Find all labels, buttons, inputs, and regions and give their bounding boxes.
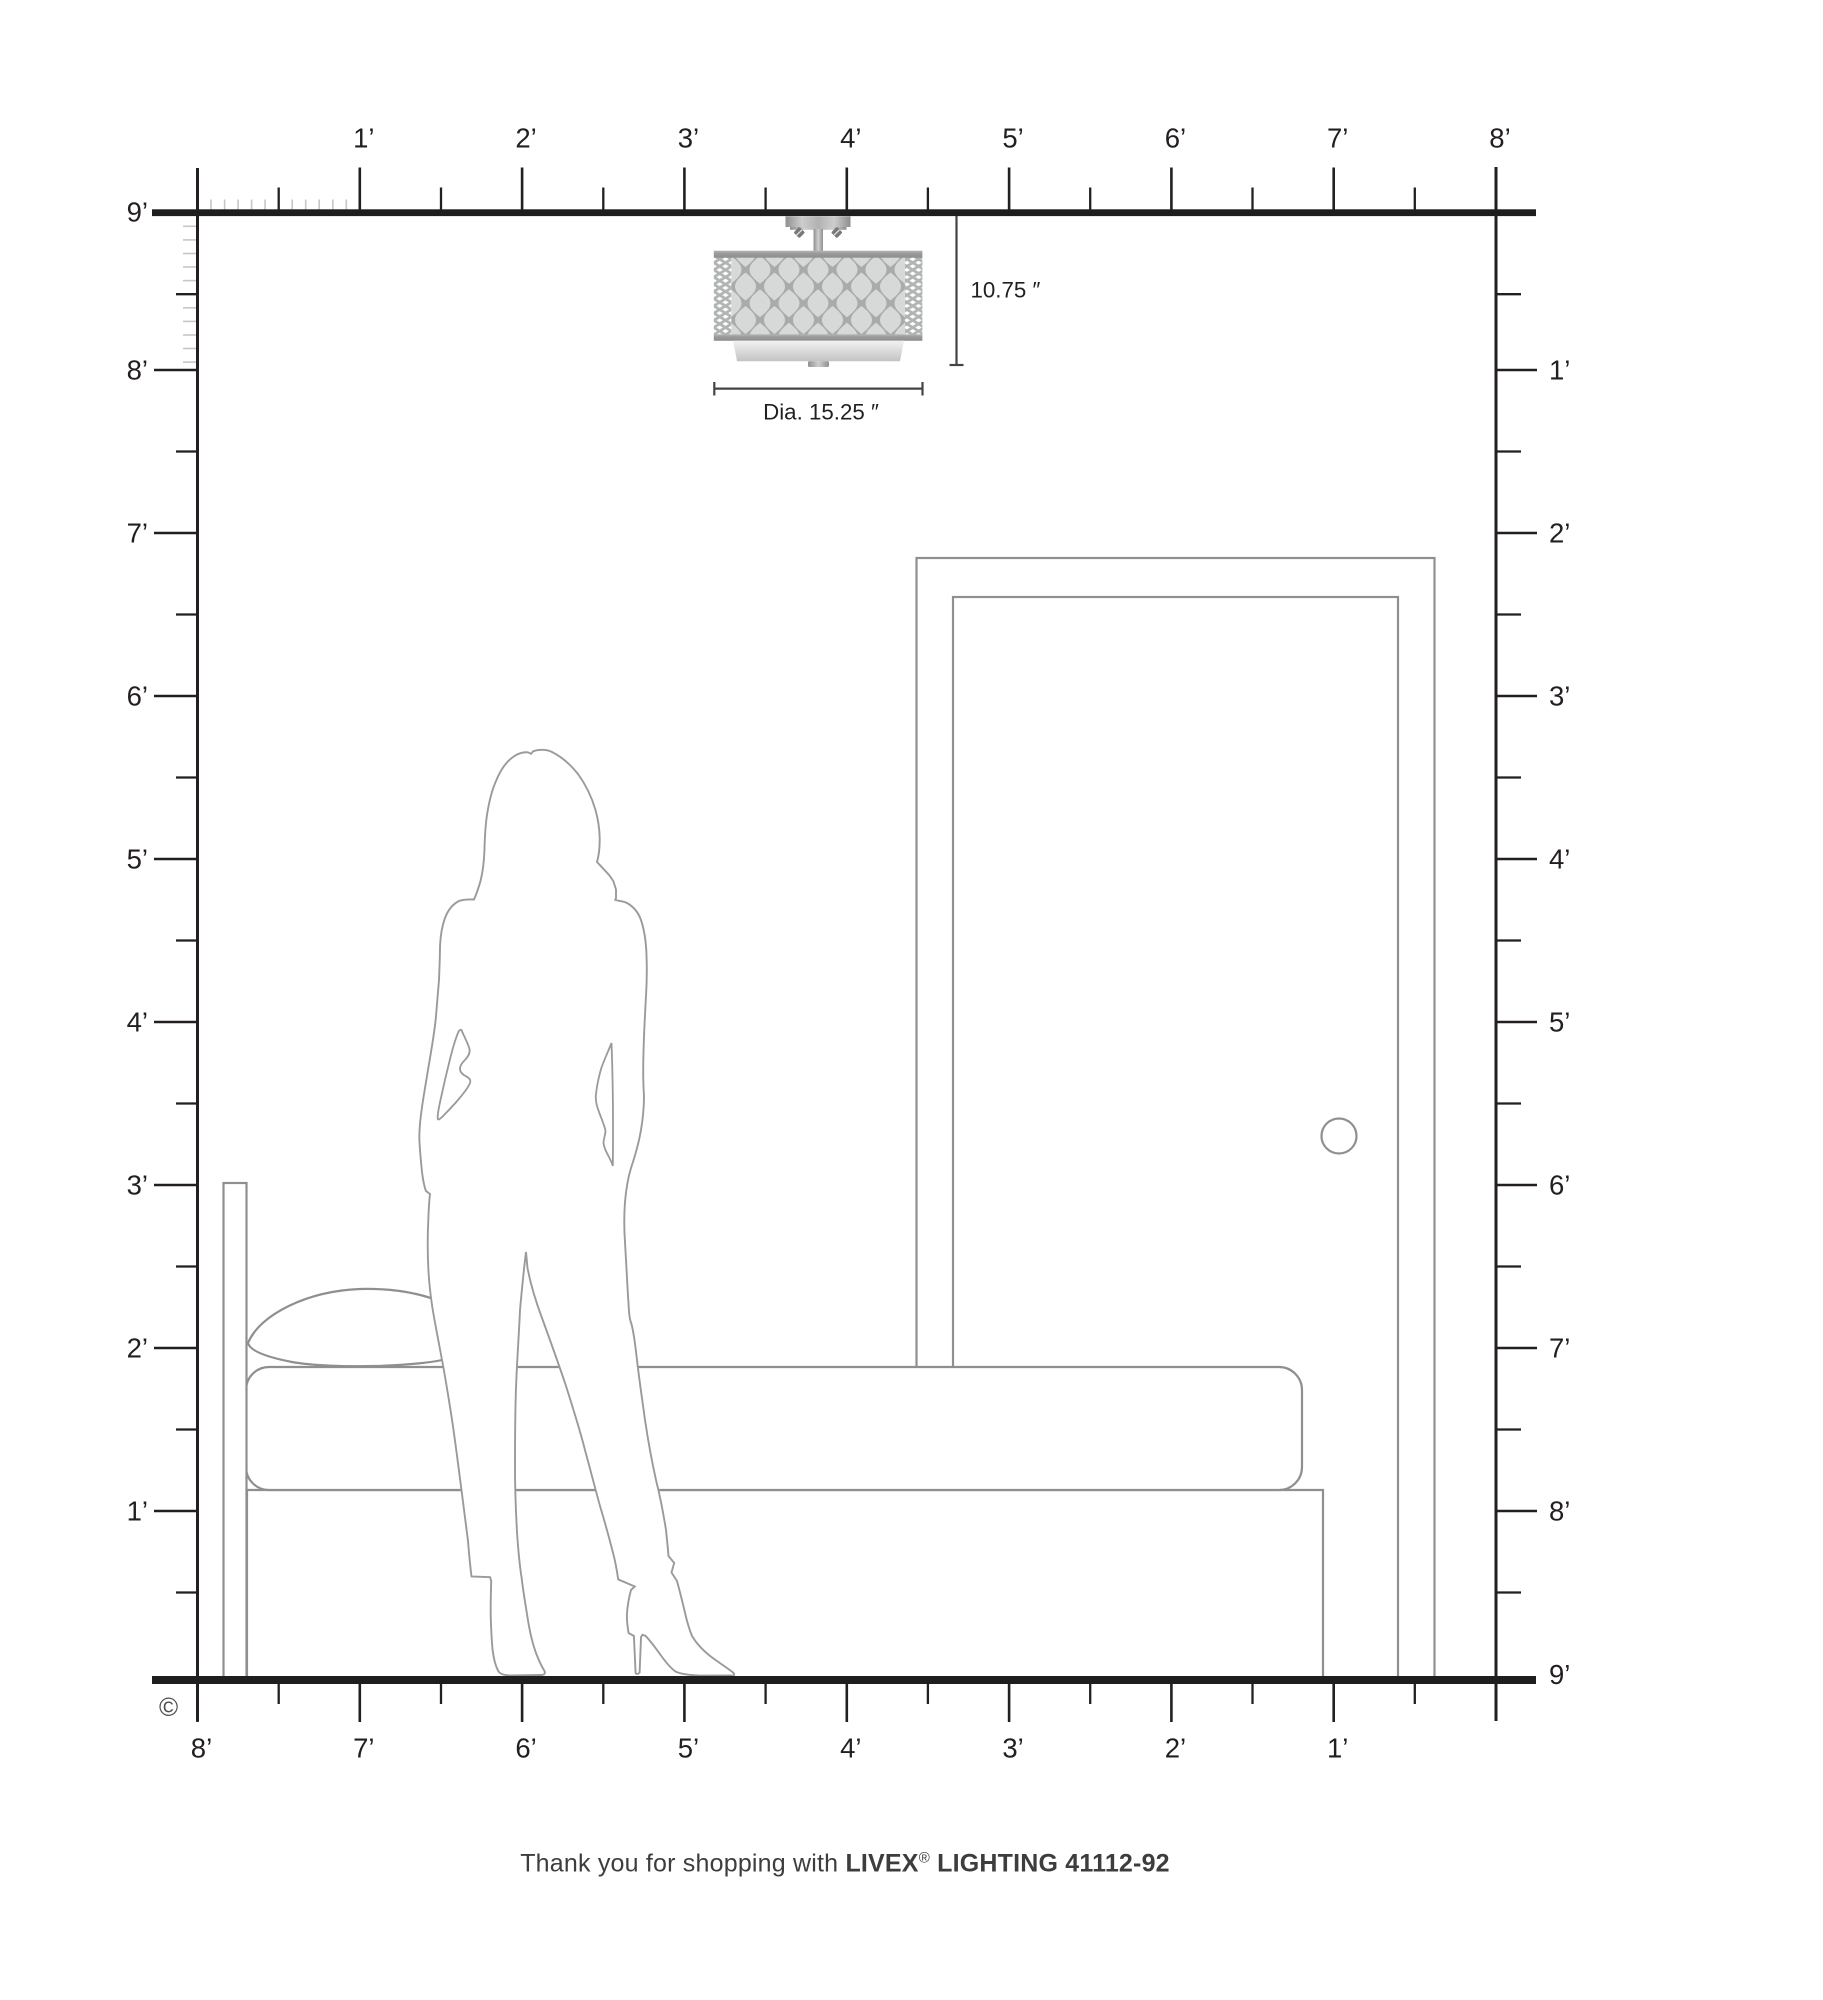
svg-text:4’: 4’	[840, 123, 861, 154]
svg-text:7’: 7’	[353, 1733, 374, 1764]
svg-text:8’: 8’	[1489, 123, 1510, 154]
svg-text:8’: 8’	[191, 1733, 212, 1764]
svg-text:6’: 6’	[1549, 1170, 1570, 1201]
svg-text:3’: 3’	[678, 123, 699, 154]
svg-text:1’: 1’	[127, 1496, 148, 1527]
svg-text:2’: 2’	[1165, 1733, 1186, 1764]
svg-text:8’: 8’	[1549, 1496, 1570, 1527]
svg-text:7’: 7’	[127, 518, 148, 549]
svg-text:6’: 6’	[127, 681, 148, 712]
svg-text:9’: 9’	[127, 197, 148, 228]
svg-text:5’: 5’	[1549, 1007, 1570, 1038]
svg-text:3’: 3’	[1549, 681, 1570, 712]
svg-text:8’: 8’	[127, 355, 148, 386]
svg-text:1’: 1’	[1327, 1733, 1348, 1764]
svg-text:2’: 2’	[127, 1333, 148, 1364]
svg-text:10.75 ″: 10.75 ″	[971, 278, 1041, 303]
svg-text:2’: 2’	[515, 123, 536, 154]
svg-text:4’: 4’	[1549, 844, 1570, 875]
svg-text:4’: 4’	[127, 1007, 148, 1038]
svg-text:Thank you for shopping with LI: Thank you for shopping with LIVEX® LIGHT…	[520, 1850, 1170, 1878]
svg-text:9’: 9’	[1549, 1659, 1570, 1690]
svg-text:7’: 7’	[1549, 1333, 1570, 1364]
svg-text:4’: 4’	[840, 1733, 861, 1764]
svg-text:©: ©	[159, 1692, 178, 1722]
svg-text:3’: 3’	[127, 1170, 148, 1201]
svg-text:Dia. 15.25 ″: Dia. 15.25 ″	[763, 400, 879, 425]
svg-text:3’: 3’	[1002, 1733, 1023, 1764]
svg-text:5’: 5’	[678, 1733, 699, 1764]
svg-text:1’: 1’	[1549, 355, 1570, 386]
svg-text:2’: 2’	[1549, 518, 1570, 549]
svg-text:6’: 6’	[1165, 123, 1186, 154]
svg-text:5’: 5’	[127, 844, 148, 875]
svg-text:5’: 5’	[1002, 123, 1023, 154]
svg-text:1’: 1’	[353, 123, 374, 154]
svg-text:7’: 7’	[1327, 123, 1348, 154]
svg-text:6’: 6’	[515, 1733, 536, 1764]
